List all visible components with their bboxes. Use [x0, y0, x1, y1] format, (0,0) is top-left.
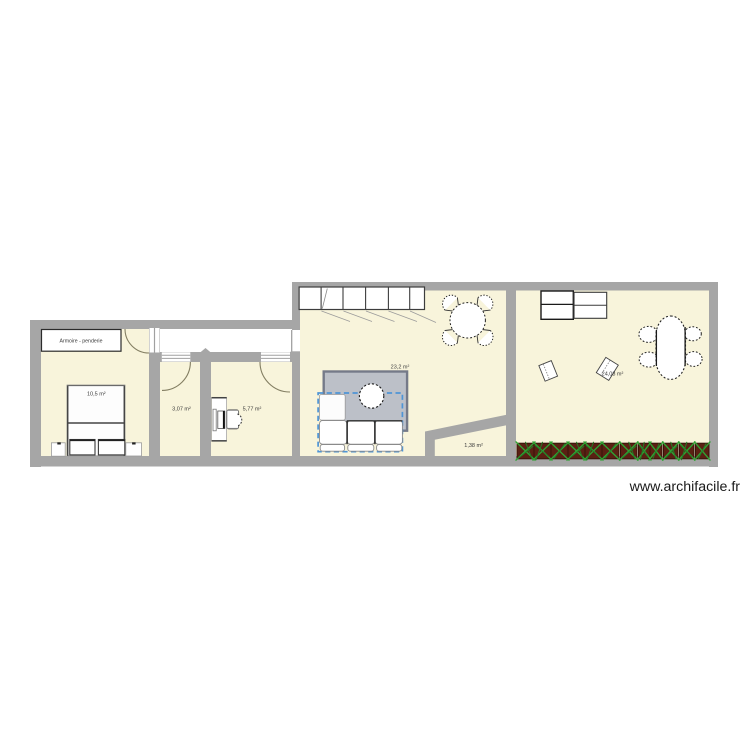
svg-text:3,07 m²: 3,07 m²: [172, 407, 191, 413]
svg-text:10,5 m²: 10,5 m²: [87, 391, 106, 397]
svg-text:www.archifacile.fr: www.archifacile.fr: [629, 479, 741, 495]
svg-text:1,38 m²: 1,38 m²: [464, 443, 483, 449]
svg-text:Armoire - penderie: Armoire - penderie: [60, 338, 103, 344]
svg-text:5,77 m²: 5,77 m²: [243, 407, 262, 413]
svg-text:24,08 m²: 24,08 m²: [602, 372, 624, 378]
svg-text:23,2 m²: 23,2 m²: [391, 364, 410, 370]
